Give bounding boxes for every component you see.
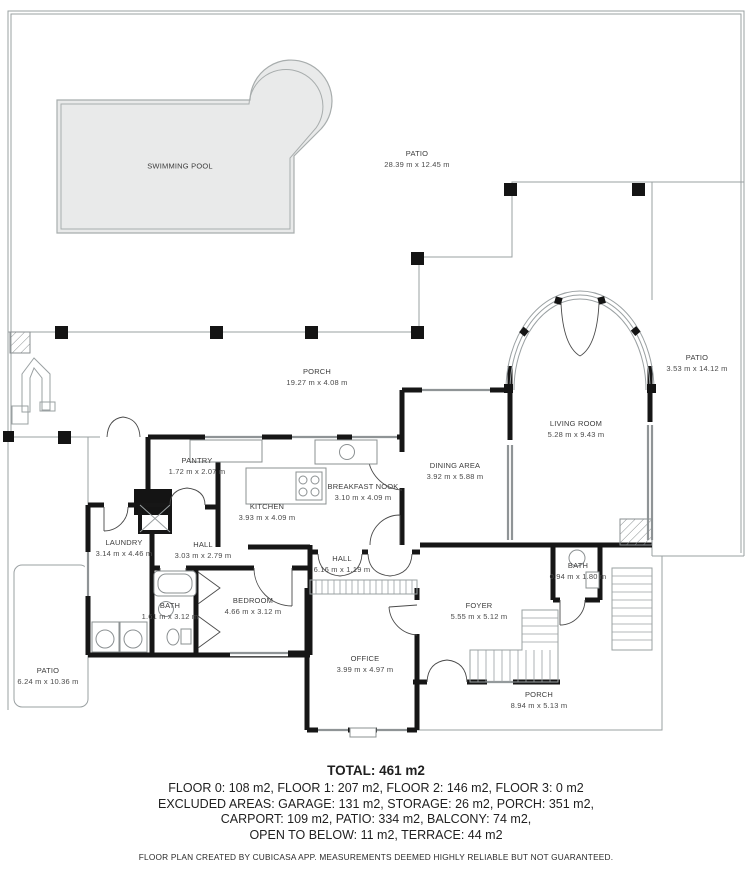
area-summary: TOTAL: 461 m2 FLOOR 0: 108 m2, FLOOR 1: … [0,763,752,842]
room-dims: 8.94 m x 5.13 m [511,701,568,712]
living-room-arch [504,291,656,393]
label-foyer: FOYER 5.55 m x 5.12 m [451,601,508,623]
room-dims: 3.53 m x 14.12 m [666,364,727,375]
excluded-areas-2: CARPORT: 109 m2, PATIO: 334 m2, BALCONY:… [0,812,752,826]
room-dims: 0.94 m x 1.80 m [550,572,607,583]
room-name: DINING AREA [427,461,484,472]
room-dims: 1.72 m x 2.07 m [169,467,226,478]
label-patio-right: PATIO 3.53 m x 14.12 m [666,353,727,375]
room-name: BREAKFAST NOOK [327,482,398,493]
room-dims: 6.24 m x 10.36 m [17,677,78,688]
swimming-pool-shape [57,60,332,233]
room-dims: 1.61 m x 3.12 m [142,612,199,623]
room-name: PATIO [384,149,450,160]
label-office: OFFICE 3.99 m x 4.97 m [337,654,394,676]
label-patio-left: PATIO 6.24 m x 10.36 m [17,666,78,688]
label-dining-area: DINING AREA 3.92 m x 5.88 m [427,461,484,483]
room-name: LAUNDRY [96,538,153,549]
label-bedroom: BEDROOM 4.66 m x 3.12 m [225,596,282,618]
excluded-areas-3: OPEN TO BELOW: 11 m2, TERRACE: 44 m2 [0,828,752,842]
room-name: PORCH [286,367,347,378]
room-name: LIVING ROOM [548,419,605,430]
label-bath-left: BATH 1.61 m x 3.12 m [142,601,199,623]
room-dims: 3.10 m x 4.09 m [327,493,398,504]
room-dims: 3.92 m x 5.88 m [427,472,484,483]
room-name: OFFICE [337,654,394,665]
floor-plan-page: SWIMMING POOL PATIO 28.39 m x 12.45 m PA… [0,0,752,874]
room-dims: 5.55 m x 5.12 m [451,612,508,623]
room-name: HALL [175,540,232,551]
room-dims: 4.66 m x 3.12 m [225,607,282,618]
label-breakfast-nook: BREAKFAST NOOK 3.10 m x 4.09 m [327,482,398,504]
disclaimer-text: FLOOR PLAN CREATED BY CUBICASA APP. MEAS… [0,852,752,862]
room-name: FOYER [451,601,508,612]
label-hall-long: HALL 6.16 m x 1.19 m [314,554,371,576]
label-pantry: PANTRY 1.72 m x 2.07 m [169,456,226,478]
room-dims: 3.03 m x 2.79 m [175,551,232,562]
room-name: KITCHEN [239,502,296,513]
room-name: PATIO [666,353,727,364]
room-dims: 5.28 m x 9.43 m [548,430,605,441]
excluded-areas-1: EXCLUDED AREAS: GARAGE: 131 m2, STORAGE:… [0,797,752,811]
label-kitchen: KITCHEN 3.93 m x 4.09 m [239,502,296,524]
room-dims: 6.16 m x 1.19 m [314,565,371,576]
room-dims: 28.39 m x 12.45 m [384,160,450,171]
room-name: PATIO [17,666,78,677]
floor-plan-drawing [0,0,752,760]
room-name: HALL [314,554,371,565]
room-name: PORCH [511,690,568,701]
label-swimming-pool: SWIMMING POOL [147,162,213,173]
room-name: PANTRY [169,456,226,467]
bedroom-closet-doors [198,572,220,648]
label-hall-small: HALL 3.03 m x 2.79 m [175,540,232,562]
label-patio-top: PATIO 28.39 m x 12.45 m [384,149,450,171]
room-dims: 3.99 m x 4.97 m [337,665,394,676]
right-staircase [612,519,652,650]
patio-decor [10,332,55,424]
label-porch-top: PORCH 19.27 m x 4.08 m [286,367,347,389]
room-name: BATH [550,561,607,572]
room-name: BATH [142,601,199,612]
laundry-fixtures [92,622,147,652]
room-name: SWIMMING POOL [147,162,213,173]
hall-band [310,580,417,594]
total-area: TOTAL: 461 m2 [0,763,752,778]
room-dims: 3.93 m x 4.09 m [239,513,296,524]
room-dims: 19.27 m x 4.08 m [286,378,347,389]
room-dims: 3.14 m x 4.46 m [96,549,153,560]
room-name: BEDROOM [225,596,282,607]
label-bath-right: BATH 0.94 m x 1.80 m [550,561,607,583]
label-laundry: LAUNDRY 3.14 m x 4.46 m [96,538,153,560]
label-porch-bottom: PORCH 8.94 m x 5.13 m [511,690,568,712]
label-living-room: LIVING ROOM 5.28 m x 9.43 m [548,419,605,441]
floor-areas: FLOOR 0: 108 m2, FLOOR 1: 207 m2, FLOOR … [0,781,752,795]
